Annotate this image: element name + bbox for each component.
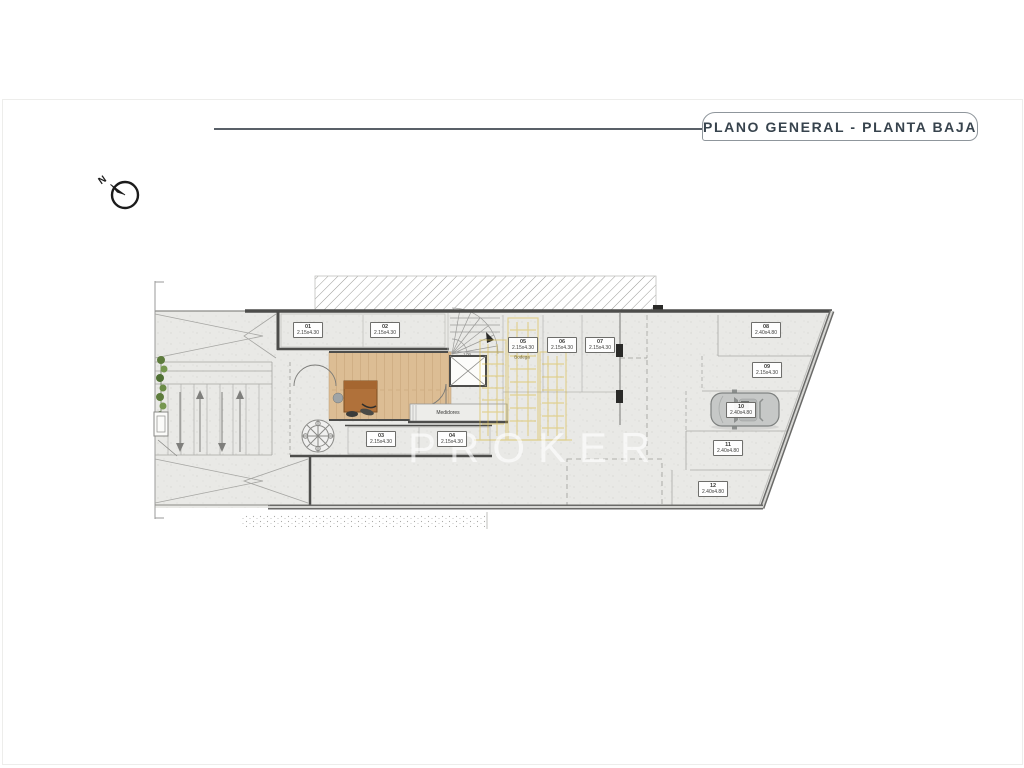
- floor-plan: [0, 0, 1024, 768]
- parking-label-08: 08 2.40x4.80: [751, 322, 781, 338]
- chair: [333, 393, 343, 403]
- parking-label-07: 07 2.15x4.30: [585, 337, 615, 353]
- medidores-room-label: Medidores: [436, 410, 459, 416]
- parking-label-12: 12 2.40x4.80: [698, 481, 728, 497]
- rosette-ornament: [302, 420, 334, 452]
- bodega-label: Bodega: [514, 355, 530, 360]
- page-canvas: PLANO GENERAL - PLANTA BAJA N: [0, 0, 1024, 768]
- parking-label-05: 05 2.15x4.30: [508, 337, 538, 353]
- parking-label-03: 03 2.15x4.30: [366, 431, 396, 447]
- stair-dimension-label: 1.00: [463, 352, 471, 357]
- neighbor-hatch-block: [315, 276, 663, 313]
- parking-label-06: 06 2.15x4.30: [547, 337, 577, 353]
- sidewalk-stipple: [240, 512, 487, 529]
- parking-label-02: 02 2.15x4.30: [370, 322, 400, 338]
- elevator-shaft: [450, 356, 486, 386]
- parking-label-11: 11 2.40x4.80: [713, 440, 743, 456]
- parking-label-10: 10 2.40x4.80: [726, 402, 756, 418]
- parking-label-09: 09 2.15x4.30: [752, 362, 782, 378]
- parking-label-04: 04 2.15x4.30: [437, 431, 467, 447]
- parking-label-01: 01 2.15x4.30: [293, 322, 323, 338]
